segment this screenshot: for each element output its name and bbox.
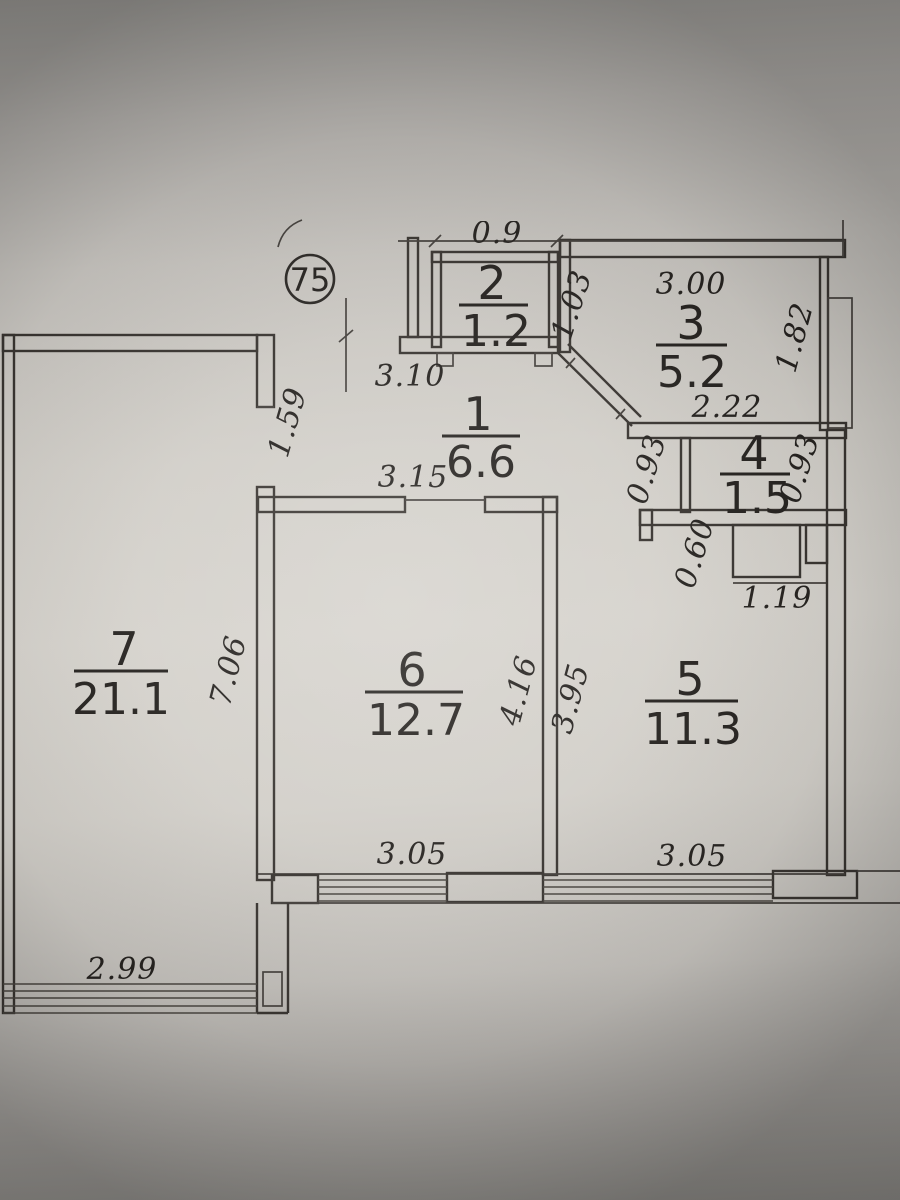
dim-duct-width: 1.19 (742, 581, 813, 616)
room-label-3: 3 5.2 (656, 296, 727, 398)
room-1-number: 1 (463, 387, 492, 441)
room-label-5: 5 11.3 (644, 652, 742, 755)
dim-room3-diagonal: 1.03 (544, 266, 599, 344)
wall-room7-left (3, 335, 14, 1013)
wall-outer-right (827, 430, 845, 875)
wall-room6-top-left (258, 497, 405, 512)
dimension-labels: 0.9 3.10 3.15 3.00 2.22 1.19 3.05 3.05 2… (86, 216, 827, 987)
dim-room3-bottom: 2.22 (691, 390, 763, 425)
room-label-6: 6 12.7 (365, 643, 465, 746)
dim-room3-top: 3.00 (656, 267, 727, 302)
wall-room7-room6 (257, 487, 274, 880)
room-7-area: 21.1 (72, 674, 170, 725)
window-bay-room3 (828, 298, 852, 428)
entry-door-arc (278, 220, 302, 247)
dim-hall-length: 3.15 (378, 460, 449, 495)
pier-left (272, 875, 318, 903)
room-label-1: 1 6.6 (442, 387, 520, 488)
pier-middle (447, 873, 543, 902)
wall-room3-right (820, 257, 828, 430)
wall-room6-room5 (543, 497, 557, 875)
dim-room3-right: 1.82 (769, 299, 821, 376)
dim-room7-window: 2.99 (86, 952, 158, 987)
dim-room4-left: 0.93 (620, 430, 674, 508)
duct-shaft-large (733, 525, 800, 577)
apartment-number: 75 (290, 261, 331, 299)
room-3-number: 3 (676, 296, 705, 350)
wall-room6-top-right (485, 497, 557, 512)
room-6-area: 12.7 (367, 695, 465, 746)
apartment-number-badge: 75 (286, 255, 334, 303)
room-7-number: 7 (109, 622, 138, 676)
room-4-number: 4 (739, 426, 768, 480)
dim-room5-window: 3.05 (657, 839, 728, 874)
dim-room4-right: 0.93 (773, 429, 827, 507)
room-label-7: 7 21.1 (72, 622, 170, 725)
room-5-number: 5 (675, 652, 704, 706)
room-5-area: 11.3 (644, 704, 742, 755)
windows (3, 871, 900, 1013)
room-1-area: 6.6 (446, 437, 516, 488)
dim-hall-depth: 1.59 (261, 384, 314, 462)
dim-room6-right: 4.16 (492, 652, 544, 730)
window-room5 (543, 880, 773, 901)
room-6-number: 6 (397, 643, 426, 697)
room-label-2: 2 1.2 (459, 256, 531, 357)
wall-room3-chamfer-inner (568, 344, 641, 417)
floor-plan-photo: 75 1 6.6 2 1.2 3 5.2 4 1.5 (0, 0, 900, 1200)
wall-room4-left (681, 438, 690, 512)
wall-room3-top (560, 240, 845, 257)
dim-top-partial: 0.9 (472, 216, 523, 251)
wall-room7-top (3, 335, 257, 351)
room-2-area: 1.2 (461, 306, 531, 357)
window-room6 (318, 880, 447, 901)
floor-plan-drawing: 75 1 6.6 2 1.2 3 5.2 4 1.5 (0, 0, 900, 1200)
dim-hall-width: 3.10 (375, 359, 446, 394)
dim-room6-window: 3.05 (377, 837, 448, 872)
duct-shaft-small (806, 525, 827, 563)
pier-room7-corner (263, 972, 282, 1006)
wall-entry-right (408, 238, 418, 337)
wall-room2-left (432, 252, 441, 347)
wall-room7-right-upper (257, 335, 274, 407)
door-stub-right (535, 353, 552, 366)
dim-room5-left: 3.95 (545, 660, 597, 737)
window-room7 (3, 984, 257, 1013)
dim-room7-wall: 7.06 (203, 632, 254, 709)
room-2-number: 2 (477, 256, 506, 310)
